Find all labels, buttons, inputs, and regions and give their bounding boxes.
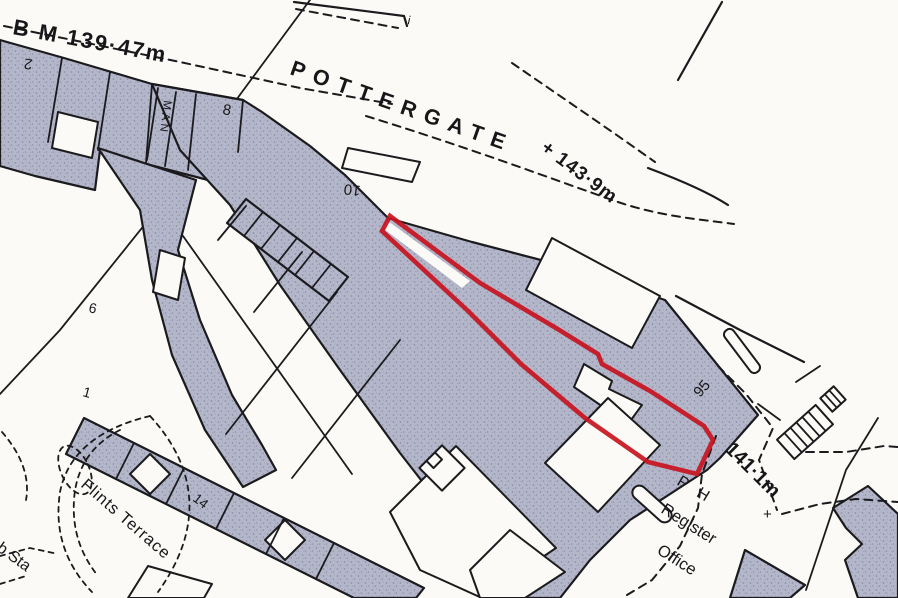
spot-marker: + [763,506,772,523]
yard-west [153,250,185,300]
map-canvas: B M 139·47m POTTERGATE + 143·9m 2 8 MAN … [0,0,898,598]
house-number-10: 10 [343,180,362,199]
os-map: B M 139·47m POTTERGATE + 143·9m 2 8 MAN … [0,0,898,598]
